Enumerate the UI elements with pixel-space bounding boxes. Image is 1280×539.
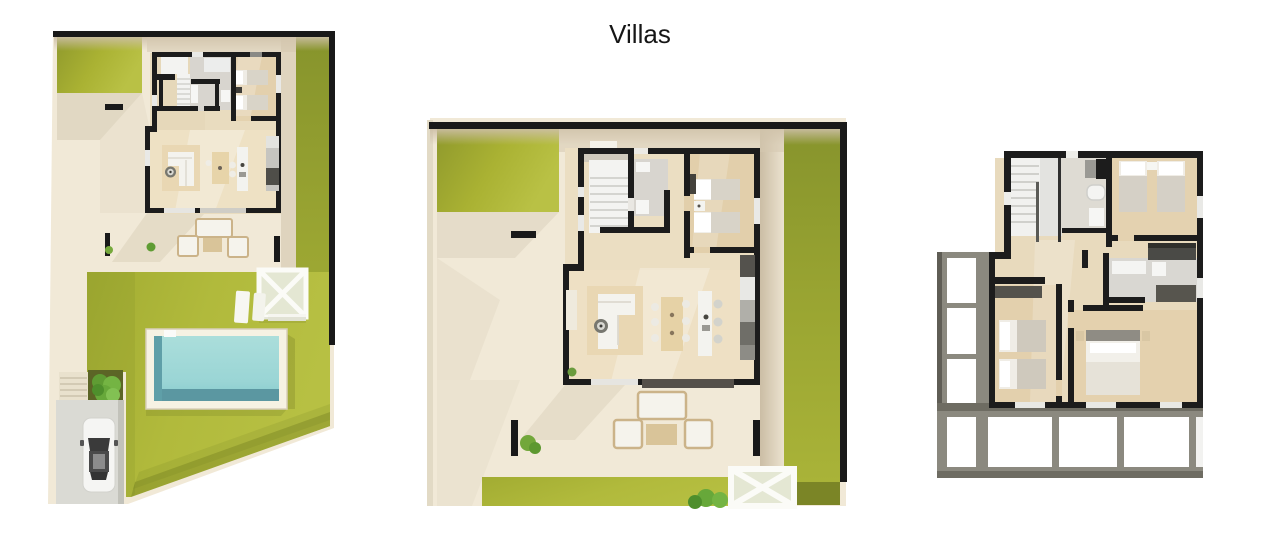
svg-text:Villas: Villas <box>609 19 671 49</box>
